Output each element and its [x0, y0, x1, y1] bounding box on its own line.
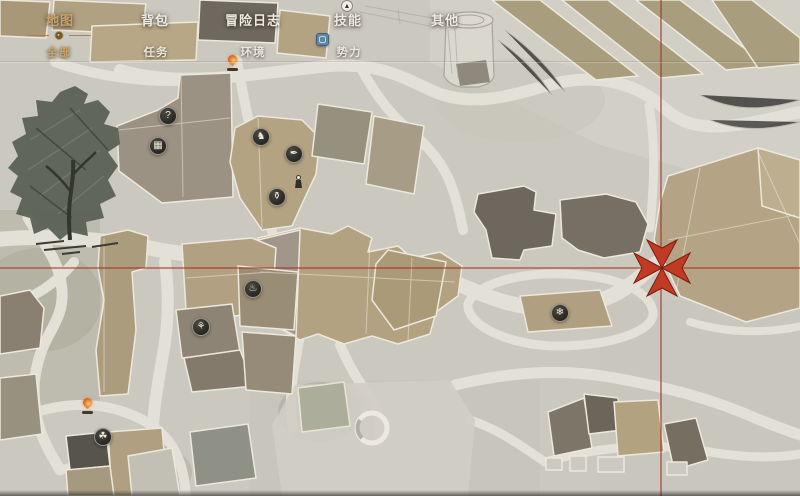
subtab-all[interactable]: 全部	[47, 44, 72, 60]
subtab-quests[interactable]: 任务	[144, 44, 169, 60]
npc-head	[296, 175, 301, 180]
bloom-poi-icon[interactable]: ❄	[551, 304, 569, 322]
flower-poi-icon[interactable]: ⚘	[192, 318, 210, 336]
log-base	[227, 68, 238, 71]
campfire-icon[interactable]	[227, 55, 239, 73]
poi-glyph: ✒	[290, 149, 298, 159]
poi-glyph: ♞	[257, 132, 266, 142]
herb-poi-icon[interactable]: ☘	[94, 428, 112, 446]
question-poi-icon[interactable]: ?	[159, 107, 177, 125]
nav-divider	[0, 62, 800, 63]
poi-glyph: ❄	[556, 308, 564, 318]
faction-badge-icon[interactable]	[316, 33, 329, 46]
tab-backpack[interactable]: 背包	[141, 10, 169, 29]
campfire-icon[interactable]	[82, 398, 94, 416]
poi-glyph: ⚘	[197, 322, 206, 332]
subtab-environment[interactable]: 环境	[241, 44, 266, 60]
npc-figure-icon[interactable]	[294, 175, 304, 188]
log-base	[82, 411, 93, 414]
tab-other[interactable]: 其他	[431, 10, 459, 29]
subtab-factions[interactable]: 势力	[337, 44, 362, 60]
world-map[interactable]	[0, 0, 800, 496]
jar-poi-icon[interactable]: ⚱	[268, 188, 286, 206]
poi-glyph: ☘	[99, 432, 108, 442]
flame-icon	[81, 396, 94, 409]
tab-adventure-log[interactable]: 冒险日志	[225, 10, 281, 29]
stall-poi-icon[interactable]: ▦	[149, 137, 167, 155]
poi-glyph: ▦	[153, 141, 162, 151]
bird-poi-icon[interactable]: ✒	[285, 145, 303, 163]
ornament-dot-icon	[55, 31, 64, 40]
poi-glyph: ⚱	[273, 192, 281, 202]
poi-glyph: ?	[165, 111, 171, 121]
poi-glyph: ♨	[249, 284, 258, 294]
map-screen: ? ▦ ♞ ✒ ⚱ ♨ ⚘ ☘ ❄ ▲ 地图 背包 冒险日志 技能 其他 全部 …	[0, 0, 800, 496]
animal-poi-icon[interactable]: ♞	[252, 128, 270, 146]
active-tab-ornament	[27, 31, 91, 40]
tab-map[interactable]: 地图	[46, 10, 74, 29]
npc-body	[295, 180, 302, 188]
bottom-vignette	[0, 490, 800, 496]
teahouse-poi-icon[interactable]: ♨	[244, 280, 262, 298]
tab-skills[interactable]: 技能	[334, 10, 362, 29]
flame-icon	[226, 53, 239, 66]
